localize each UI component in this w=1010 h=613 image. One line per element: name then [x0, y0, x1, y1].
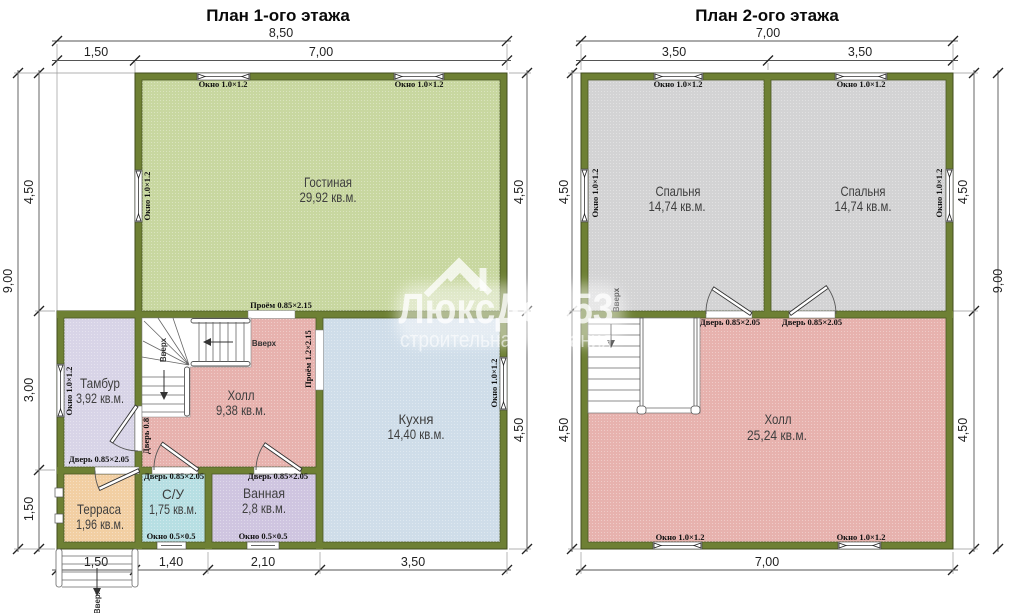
svg-text:ЛюксДом53: ЛюксДом53	[399, 285, 614, 333]
svg-text:Спальня: Спальня	[656, 183, 701, 199]
svg-text:1,50: 1,50	[22, 497, 36, 521]
svg-text:Проём 0.85×2.15: Проём 0.85×2.15	[250, 300, 312, 310]
svg-text:Дверь 0.85×2.05: Дверь 0.85×2.05	[144, 471, 204, 481]
svg-text:7,00: 7,00	[309, 45, 333, 59]
svg-text:Вверх: Вверх	[159, 337, 168, 362]
svg-text:14,74 кв.м.: 14,74 кв.м.	[835, 198, 892, 214]
svg-text:Окно 1.0×1.2: Окно 1.0×1.2	[199, 79, 248, 89]
svg-text:Вверх: Вверх	[93, 589, 102, 613]
svg-text:1,75 кв.м.: 1,75 кв.м.	[149, 501, 197, 517]
svg-text:4,50: 4,50	[512, 418, 526, 442]
svg-text:9,00: 9,00	[991, 269, 1005, 293]
svg-text:строительная компания: строительная компания	[400, 327, 612, 352]
svg-text:Дверь 0.85×2.05: Дверь 0.85×2.05	[69, 454, 129, 464]
svg-text:Окно 1.0×1.2: Окно 1.0×1.2	[590, 169, 600, 218]
svg-text:2,10: 2,10	[251, 555, 275, 569]
svg-text:7,00: 7,00	[755, 555, 779, 569]
svg-text:1,50: 1,50	[84, 45, 108, 59]
svg-text:29,92 кв.м.: 29,92 кв.м.	[300, 189, 357, 205]
svg-text:Дверь 0.85×2.05: Дверь 0.85×2.05	[700, 317, 760, 327]
svg-text:3,50: 3,50	[848, 45, 872, 59]
svg-text:Дверь 0.85×2.05: Дверь 0.85×2.05	[782, 317, 842, 327]
svg-text:Дверь 0.85×2.05: Дверь 0.85×2.05	[248, 471, 308, 481]
svg-text:Гостиная: Гостиная	[304, 174, 352, 190]
svg-text:1,40: 1,40	[159, 555, 183, 569]
svg-text:Окно 1.0×1.2: Окно 1.0×1.2	[656, 532, 705, 542]
svg-text:Окно 1.0×1.2: Окно 1.0×1.2	[934, 169, 944, 218]
svg-text:План 1-ого этажа: План 1-ого этажа	[206, 6, 350, 25]
svg-text:Окно 0.5×0.5: Окно 0.5×0.5	[147, 531, 196, 541]
svg-text:Ванная: Ванная	[243, 485, 285, 501]
svg-text:Кухня: Кухня	[399, 411, 434, 427]
svg-text:Окно 1.0×1.2: Окно 1.0×1.2	[64, 367, 74, 416]
svg-text:3,50: 3,50	[401, 555, 425, 569]
svg-text:9,38 кв.м.: 9,38 кв.м.	[216, 402, 266, 418]
svg-text:3,92 кв.м.: 3,92 кв.м.	[76, 390, 124, 406]
svg-text:Окно 0.5×0.5: Окно 0.5×0.5	[239, 531, 288, 541]
svg-text:С/У: С/У	[162, 486, 184, 502]
svg-text:Окно 1.0×1.2: Окно 1.0×1.2	[837, 79, 886, 89]
svg-text:Окно 1.0×1.2: Окно 1.0×1.2	[395, 79, 444, 89]
svg-text:Окно 1.0×1.2: Окно 1.0×1.2	[837, 532, 886, 542]
svg-text:Спальня: Спальня	[841, 183, 886, 199]
svg-text:3,50: 3,50	[662, 45, 686, 59]
svg-text:4,50: 4,50	[557, 180, 571, 204]
svg-text:8,50: 8,50	[269, 26, 293, 40]
svg-text:Вверх: Вверх	[252, 339, 277, 348]
svg-text:Проём 1.2×2.15: Проём 1.2×2.15	[303, 330, 313, 388]
svg-text:25,24 кв.м.: 25,24 кв.м.	[747, 427, 807, 443]
svg-text:Окно 1.0×1.2: Окно 1.0×1.2	[142, 172, 152, 221]
svg-text:14,74 кв.м.: 14,74 кв.м.	[649, 198, 706, 214]
svg-text:2,8 кв.м.: 2,8 кв.м.	[242, 500, 286, 516]
svg-text:4,50: 4,50	[557, 418, 571, 442]
svg-text:4,50: 4,50	[22, 180, 36, 204]
svg-text:План 2-ого этажа: План 2-ого этажа	[695, 6, 839, 25]
svg-text:Холл: Холл	[228, 387, 255, 403]
svg-text:4,50: 4,50	[956, 418, 970, 442]
svg-text:14,40 кв.м.: 14,40 кв.м.	[388, 426, 445, 442]
svg-text:1,96 кв.м.: 1,96 кв.м.	[76, 516, 124, 532]
svg-text:Окно 1.0×1.2: Окно 1.0×1.2	[654, 79, 703, 89]
svg-text:Терраса: Терраса	[77, 501, 121, 517]
svg-text:Холл: Холл	[765, 411, 792, 427]
svg-text:Тамбур: Тамбур	[80, 375, 120, 391]
svg-text:4,50: 4,50	[512, 180, 526, 204]
svg-text:7,00: 7,00	[756, 26, 780, 40]
svg-text:3,00: 3,00	[22, 378, 36, 402]
svg-text:4,50: 4,50	[956, 180, 970, 204]
svg-text:9,00: 9,00	[1, 269, 15, 293]
svg-text:1,50: 1,50	[84, 555, 108, 569]
svg-text:Окно 1.0×1.2: Окно 1.0×1.2	[489, 359, 499, 408]
